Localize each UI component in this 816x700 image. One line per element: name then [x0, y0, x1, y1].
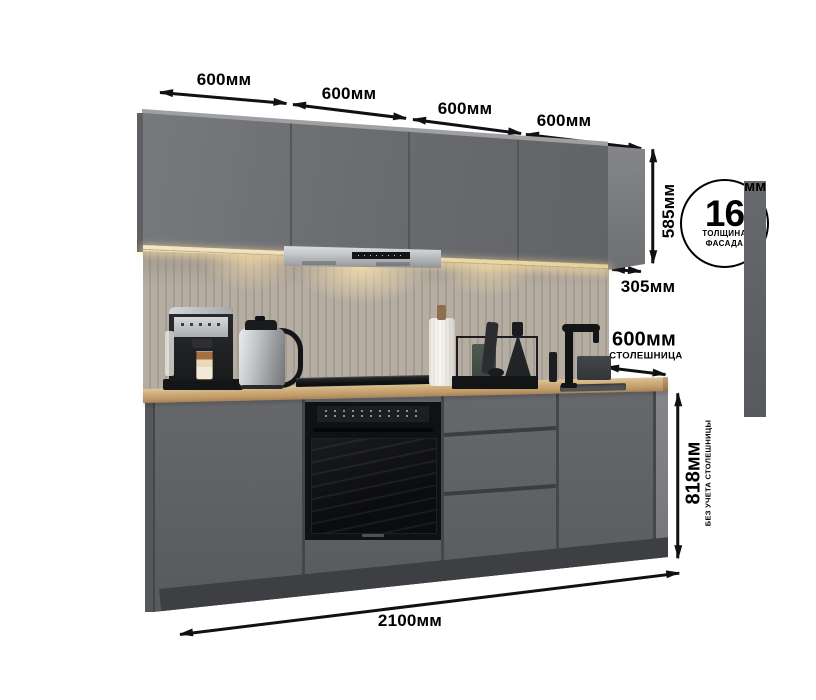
latte-glass [196, 351, 213, 380]
electric-kettle [239, 328, 285, 386]
countertop-depth-arrow [606, 366, 666, 376]
upper-height-arrow [652, 149, 655, 263]
oven-control-panel [317, 406, 429, 422]
base-height-labels: 818мм БЕЗ УЧЕТА СТОЛЕШНИЦЫ [684, 420, 713, 526]
coffee-machine-face [174, 317, 228, 337]
width-arrow-1 [160, 91, 287, 104]
base-height-label: 818мм [684, 420, 705, 526]
oven-door-glass [311, 438, 437, 534]
facade-thickness-value: 16мм [705, 198, 744, 229]
hood-filter-slot [376, 262, 410, 266]
width-label-2: 600мм [322, 84, 377, 104]
upper-cabinet-right-side [608, 144, 645, 271]
width-label-4: 600мм [537, 111, 592, 131]
width-label-3: 600мм [438, 99, 493, 119]
hood-filter-slot [302, 261, 336, 265]
soap-dispenser [549, 352, 557, 382]
upper-depth-arrow [612, 268, 641, 273]
facade-thickness-caption-1: ТОЛЩИНА [702, 229, 747, 239]
coffee-machine-water-tank [165, 331, 174, 376]
kettle-knob [255, 316, 265, 321]
faucet-body [565, 330, 573, 385]
oven-brand-logo [362, 534, 384, 537]
kettle-lid [245, 320, 277, 330]
faucet-base [561, 383, 577, 388]
facade-thickness-badge: 16мм ТОЛЩИНА ФАСАДА [680, 179, 769, 268]
faucet-spout-tip [593, 330, 599, 343]
base-height-caption: БЕЗ УЧЕТА СТОЛЕШНИЦЫ [705, 420, 713, 526]
width-arrow-2 [293, 103, 406, 119]
sink-rear-deck [577, 356, 611, 380]
paper-towel-holder-knob [437, 305, 446, 320]
facade-thickness-unit: мм [744, 181, 766, 417]
upper-height-label: 585мм [659, 184, 679, 239]
countertop-caption: СТОЛЕШНИЦА [609, 351, 682, 362]
kitchen-product-diagram: 600мм 600мм 600мм 600мм 585мм 16мм ТОЛЩИ… [0, 0, 816, 700]
oil-bottle-neck [512, 322, 523, 336]
countertop-depth-label: 600мм [612, 329, 676, 352]
width-label-1: 600мм [197, 70, 252, 90]
kettle-base [241, 385, 283, 389]
base-height-arrow [677, 393, 680, 558]
oven-handle [313, 428, 433, 432]
total-width-label: 2100мм [378, 611, 442, 631]
facade-thickness-caption-2: ФАСАДА [706, 239, 744, 249]
base-cabinets [153, 376, 668, 612]
coffee-machine-spout [192, 339, 212, 348]
board-rack-tray [452, 376, 538, 389]
coffee-machine-buttons [181, 323, 221, 326]
hood-control-panel [352, 252, 410, 259]
base-cabinet-left-side [145, 398, 153, 612]
coffee-machine-top [169, 307, 233, 314]
upper-depth-label: 305мм [621, 277, 676, 297]
upper-door-gap [408, 112, 410, 272]
upper-cabinet-left-side [137, 113, 143, 252]
built-in-oven [305, 402, 441, 540]
